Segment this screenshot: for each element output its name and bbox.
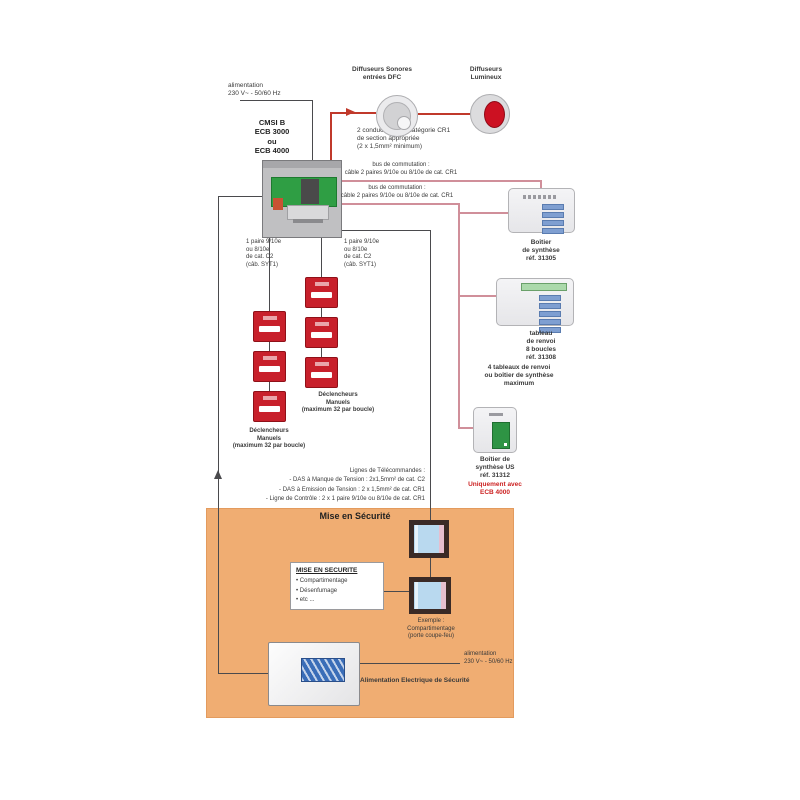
terminal-pins	[293, 219, 323, 223]
info-box-title: MISE EN SECURITE	[296, 567, 378, 575]
mains-label: alimentation 230 V~ - 50/60 Hz	[228, 82, 298, 98]
renvoi-max-note: 4 tableaux de renvoi ou boîtier de synth…	[460, 364, 578, 388]
manual-call-point	[253, 351, 286, 382]
return-wire-bottom	[218, 673, 268, 674]
door-link-wire	[430, 558, 431, 578]
manual-call-point	[253, 311, 286, 342]
loop-right-wire	[321, 348, 322, 357]
security-zone	[206, 508, 514, 718]
synthese-us-warning: Uniquement avec ECB 4000	[458, 481, 532, 497]
info-box-items: • Compartimentage • Désenfumage • etc ..…	[296, 577, 378, 606]
das-wire-v	[430, 230, 431, 520]
das-wire-h	[342, 230, 430, 231]
return-wire-vertical	[218, 196, 219, 673]
sounder-hub	[397, 116, 411, 130]
panel-screen	[492, 422, 510, 449]
bus1-wire-v	[540, 180, 542, 188]
cmsi-label: CMSI B ECB 3000 ou ECB 4000	[240, 118, 304, 156]
sounder-icon	[376, 95, 418, 137]
wiring-diagram: Mise en Sécurité alimentation 230 V~ - 5…	[0, 0, 800, 800]
synthese-us-label: Boîtier de synthèse US réf. 31312	[462, 456, 528, 480]
circuit-component	[273, 198, 283, 210]
fire-door-icon	[409, 520, 449, 558]
cmsi-cabinet	[262, 160, 342, 238]
cabinet-top-strip	[263, 161, 341, 168]
synthese-us-panel	[473, 407, 517, 453]
loop-left-wiring-note: 1 paire 9/10e ou 8/10e de cat. C2 (câb. …	[246, 239, 292, 269]
sounder-ring	[383, 102, 411, 130]
return-wire-top	[218, 196, 262, 197]
sounders-label: Diffuseurs Sonores entrées DFC	[346, 66, 418, 82]
mains-wire-h	[240, 100, 312, 101]
beacons-label: Diffuseurs Lumineux	[458, 66, 514, 82]
up-arrow-icon	[214, 470, 222, 479]
telecommand-note: Lignes de Télécommandes : - DAS à Manque…	[258, 467, 425, 504]
bus-branch-synthese	[458, 212, 508, 214]
manual-call-point	[305, 277, 338, 308]
manual-call-point	[305, 357, 338, 388]
security-info-box: MISE EN SECURITE • Compartimentage • Dés…	[290, 562, 384, 610]
panel-slot	[489, 413, 503, 416]
panel-buttons	[542, 204, 564, 234]
loop-right-wire	[321, 238, 322, 277]
psu-mains-label: alimentation 230 V~ - 50/60 Hz	[464, 651, 534, 666]
psu-mains-wire	[360, 663, 460, 664]
synthese-panel-label: Boîtier de synthèse réf. 31305	[508, 239, 574, 263]
bus2-wire-h	[342, 203, 458, 205]
psu-label: Alimentation Electrique de Sécurité	[360, 677, 500, 685]
bus2-label: bus de commutation : câble 2 paires 9/10…	[336, 185, 458, 200]
bus1-label: bus de commutation : câble 2 paires 9/10…	[340, 162, 462, 177]
loop-left-wire	[269, 342, 270, 351]
renvoi-panel-label: tableau de renvoi 8 boucles réf. 31308	[508, 330, 574, 363]
speaker-grille-icon	[523, 195, 556, 199]
door-caption: Exemple : Compartimentage (porte coupe-f…	[396, 618, 466, 641]
bus-branch-renvoi	[458, 295, 496, 297]
dm-right-label: Déclencheurs Manuels (maximum 32 par bou…	[296, 392, 380, 415]
fire-door-icon	[409, 577, 451, 614]
beacon-lens	[484, 101, 505, 128]
dm-left-label: Déclencheurs Manuels (maximum 32 par bou…	[227, 428, 311, 451]
mounting-bracket	[287, 205, 329, 220]
beacon-wire-h	[418, 113, 470, 115]
mains-wire-v	[312, 100, 313, 160]
sounder-wire-v	[330, 112, 332, 160]
panel-buttons	[539, 295, 561, 333]
synthese-panel	[508, 188, 575, 233]
loop-right-wiring-note: 1 paire 9/10e ou 8/10e de cat. C2 (câb. …	[344, 239, 390, 269]
infobox-link-wire	[384, 591, 409, 592]
psu-brand-sticker	[301, 658, 345, 682]
bus-branch-synthese-us	[458, 427, 473, 429]
red-arrow-icon	[346, 108, 355, 116]
renvoi-panel	[496, 278, 574, 326]
bus1-wire-h	[342, 180, 540, 182]
bus2-wire-v	[458, 203, 460, 427]
security-zone-title: Mise en Sécurité	[280, 511, 430, 522]
loop-right-wire	[321, 308, 322, 317]
panel-green-bar	[521, 283, 567, 291]
circuit-chip	[301, 179, 319, 204]
manual-call-point	[253, 391, 286, 422]
beacon-icon	[470, 94, 510, 134]
loop-left-wire	[269, 382, 270, 391]
psu-box	[268, 642, 360, 706]
manual-call-point	[305, 317, 338, 348]
